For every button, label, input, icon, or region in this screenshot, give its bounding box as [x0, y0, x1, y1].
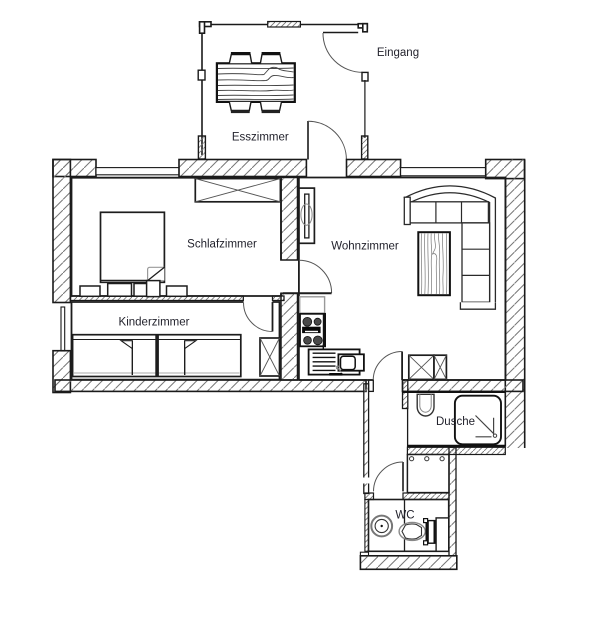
svg-text:WC: WC	[395, 510, 414, 522]
svg-text:Wohnzimmer: Wohnzimmer	[331, 241, 399, 253]
svg-text:Schlafzimmer: Schlafzimmer	[187, 239, 257, 251]
svg-text:Eingang: Eingang	[377, 47, 419, 59]
svg-text:Dusche: Dusche	[436, 416, 475, 428]
svg-text:Esszimmer: Esszimmer	[232, 132, 289, 144]
svg-text:Kinderzimmer: Kinderzimmer	[119, 317, 190, 329]
